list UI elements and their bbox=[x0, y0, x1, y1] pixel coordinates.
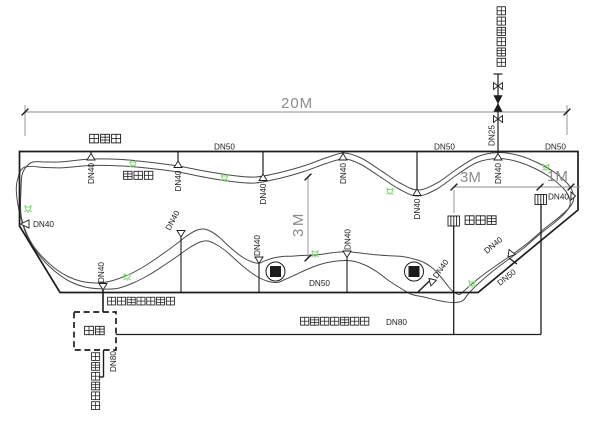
svg-text:DN40: DN40 bbox=[494, 163, 503, 184]
svg-text:DN50: DN50 bbox=[214, 143, 235, 152]
svg-text:DN40: DN40 bbox=[413, 198, 422, 219]
svg-text:DN40: DN40 bbox=[174, 170, 183, 191]
svg-text:1M: 1M bbox=[547, 168, 568, 185]
svg-text:DN40: DN40 bbox=[259, 183, 268, 204]
svg-text:DN40: DN40 bbox=[344, 229, 353, 250]
svg-text:DN80: DN80 bbox=[109, 351, 118, 372]
svg-text:DN40: DN40 bbox=[33, 220, 54, 229]
svg-text:DN40: DN40 bbox=[87, 163, 96, 184]
svg-text:DN40: DN40 bbox=[339, 163, 348, 184]
svg-text:3M: 3M bbox=[290, 211, 307, 237]
svg-text:DN50: DN50 bbox=[309, 279, 330, 288]
svg-text:DN25: DN25 bbox=[488, 125, 497, 146]
svg-text:20M: 20M bbox=[281, 95, 313, 112]
svg-text:DN40: DN40 bbox=[253, 235, 262, 256]
svg-text:DN40: DN40 bbox=[97, 262, 106, 283]
svg-text:3M: 3M bbox=[460, 169, 481, 186]
svg-text:DN40: DN40 bbox=[548, 193, 569, 202]
svg-text:DN50: DN50 bbox=[545, 143, 566, 152]
svg-text:DN80: DN80 bbox=[386, 318, 407, 327]
svg-text:DN50: DN50 bbox=[434, 143, 455, 152]
